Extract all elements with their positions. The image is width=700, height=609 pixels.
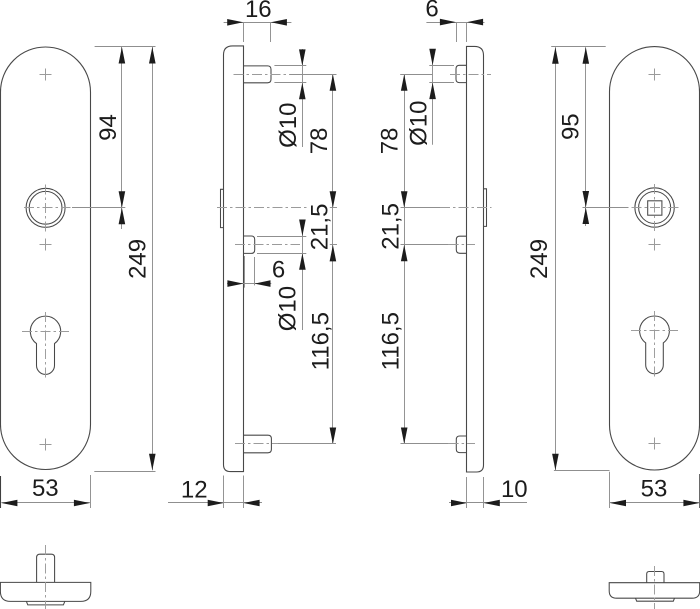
svg-text:78: 78	[376, 128, 403, 155]
svg-text:Ø10: Ø10	[275, 103, 302, 148]
svg-text:16: 16	[245, 0, 272, 23]
svg-text:10: 10	[501, 476, 528, 503]
svg-text:21,5: 21,5	[378, 203, 405, 250]
svg-text:21,5: 21,5	[307, 204, 334, 251]
svg-text:6: 6	[272, 257, 285, 284]
svg-text:116,5: 116,5	[307, 312, 334, 370]
svg-text:Ø10: Ø10	[274, 286, 301, 331]
svg-text:249: 249	[125, 239, 152, 279]
svg-text:12: 12	[181, 477, 208, 504]
svg-text:249: 249	[526, 239, 553, 279]
svg-text:6: 6	[425, 0, 438, 23]
svg-text:95: 95	[558, 113, 585, 140]
svg-text:Ø10: Ø10	[406, 101, 433, 146]
svg-text:116,5: 116,5	[378, 312, 405, 370]
svg-text:53: 53	[32, 475, 59, 502]
svg-text:94: 94	[95, 114, 122, 141]
svg-text:53: 53	[641, 476, 668, 503]
svg-text:78: 78	[306, 128, 333, 155]
